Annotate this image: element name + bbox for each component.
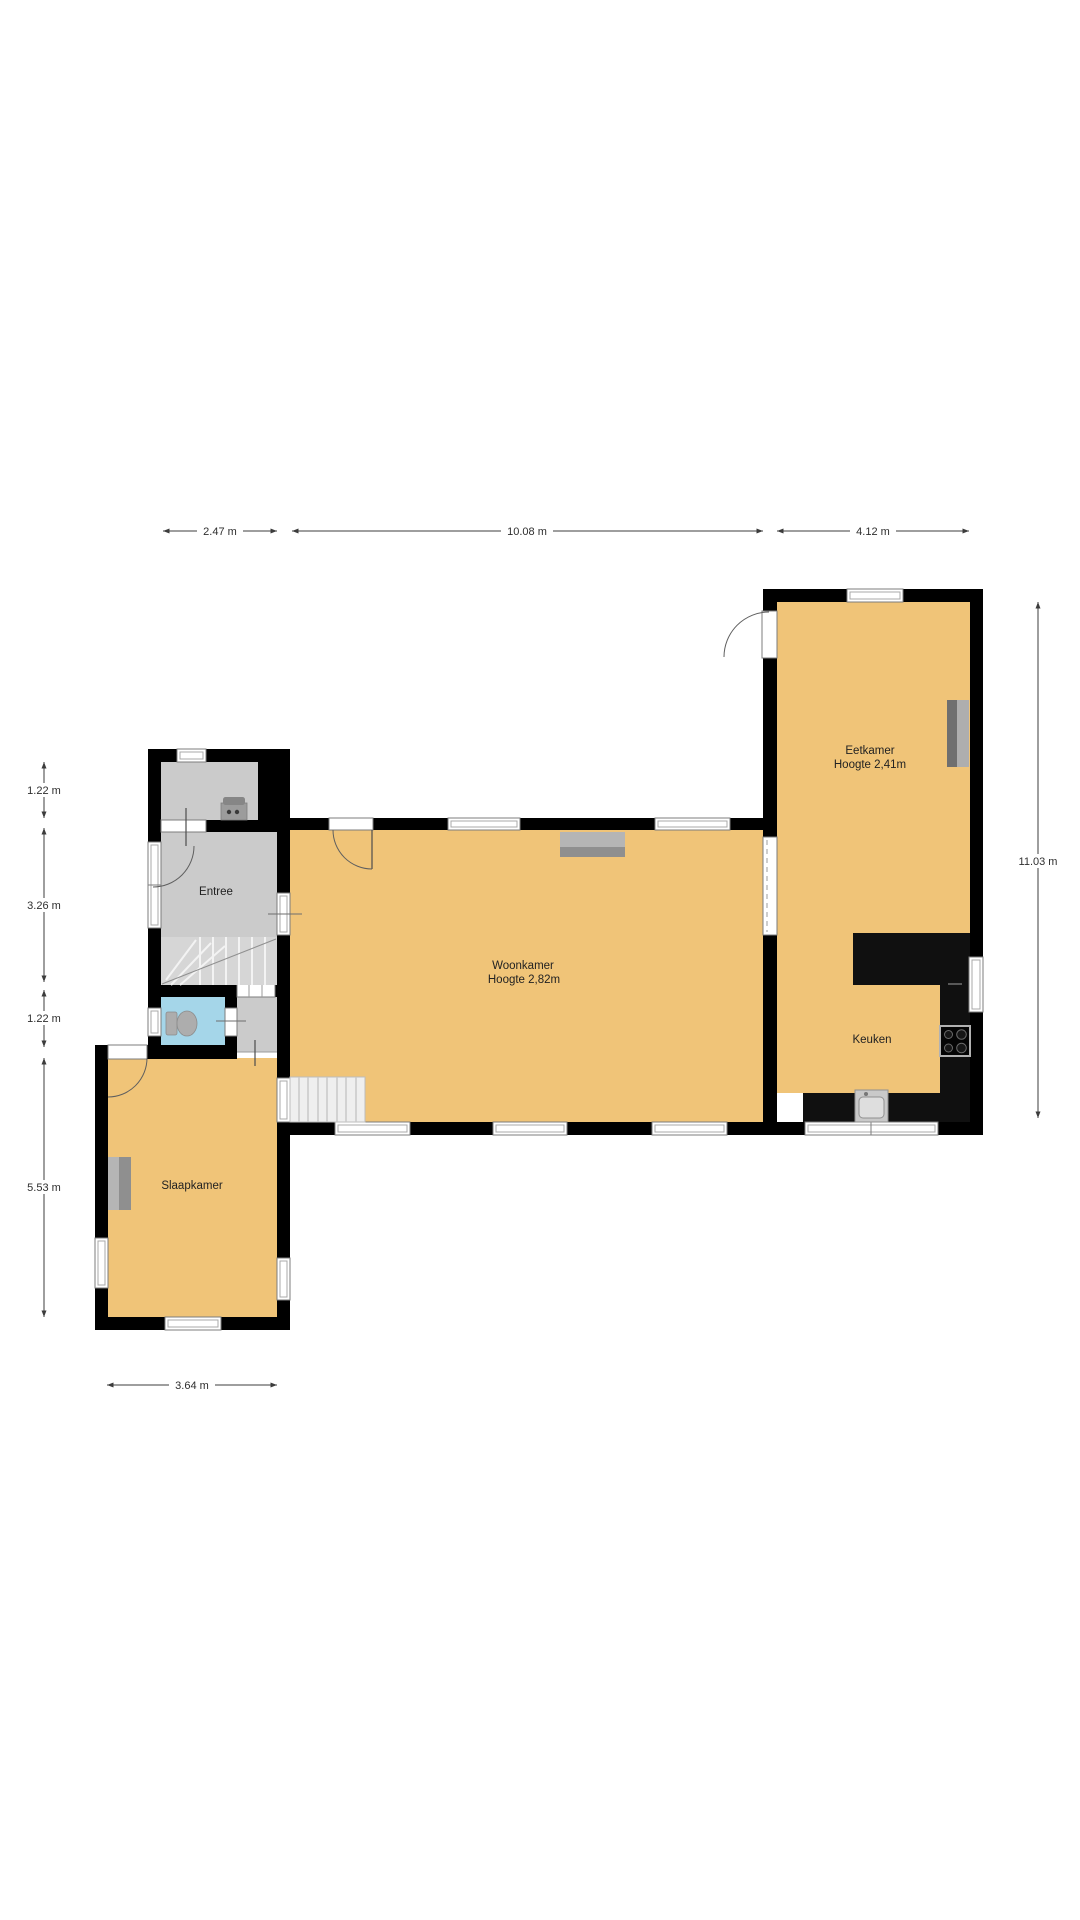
label-woonkamer: Woonkamer: [492, 960, 554, 972]
window-woonkamer-bottom-2: [493, 1122, 567, 1135]
dim-top-2: 10.08 m: [507, 526, 547, 538]
wardrobe-slaapkamer: [108, 1157, 131, 1210]
kitchen-sink: [855, 1090, 888, 1122]
window-slaapkamer-right: [277, 1258, 290, 1300]
window-woonkamer-bottom-1: [335, 1122, 410, 1135]
window-woonkamer-top-2: [655, 818, 730, 830]
wall-unit-eetkamer: [947, 700, 969, 767]
label-eetkamer-height: Hoogte 2,41m: [834, 759, 906, 771]
dim-bottom-1: 3.64 m: [175, 1380, 209, 1392]
stairs-entree: [161, 937, 277, 985]
dim-top-1: 2.47 m: [203, 526, 237, 538]
dim-top-3: 4.12 m: [856, 526, 890, 538]
label-slaapkamer: Slaapkamer: [161, 1180, 223, 1192]
dim-right-1: 11.03 m: [1019, 856, 1058, 868]
cooktop: [940, 1026, 970, 1056]
boiler-unit: [221, 797, 247, 820]
window-keuken-right: [969, 957, 983, 1012]
floor-plan-svg: 2.47 m 10.08 m 4.12 m 1.22 m 3.26 m 1.22…: [0, 0, 1080, 1920]
label-woonkamer-height: Hoogte 2,82m: [488, 974, 560, 986]
door-eetkamer-exterior: [724, 611, 777, 658]
window-keuken-bottom: [805, 1122, 938, 1135]
window-woonkamer-top-1: [448, 818, 520, 830]
toilet-fixture: [166, 1011, 197, 1036]
window-slaapkamer-left: [95, 1238, 108, 1288]
dim-left-2: 3.26 m: [27, 900, 61, 912]
label-entree: Entree: [199, 886, 233, 898]
stairs-woonkamer: [290, 1077, 365, 1122]
floor-plan-page: 2.47 m 10.08 m 4.12 m 1.22 m 3.26 m 1.22…: [0, 0, 1080, 1920]
window-woonkamer-bottom-3: [652, 1122, 727, 1135]
window-slaapkamer-bottom: [165, 1317, 221, 1330]
label-keuken: Keuken: [852, 1034, 891, 1046]
window-eetkamer-top: [847, 589, 903, 602]
window-closet-top: [177, 749, 206, 762]
label-eetkamer: Eetkamer: [845, 745, 894, 757]
room-hallway: [237, 995, 277, 1052]
sideboard-woonkamer: [560, 832, 625, 857]
dim-left-1: 1.22 m: [27, 785, 61, 797]
window-stairwell-right: [277, 1078, 290, 1122]
dim-left-3: 1.22 m: [27, 1013, 61, 1025]
passage-woonkamer-eetkamer: [763, 837, 777, 935]
window-toilet-left: [148, 1008, 161, 1036]
window-entree-left: [148, 842, 161, 928]
dim-left-4: 5.53 m: [27, 1182, 61, 1194]
